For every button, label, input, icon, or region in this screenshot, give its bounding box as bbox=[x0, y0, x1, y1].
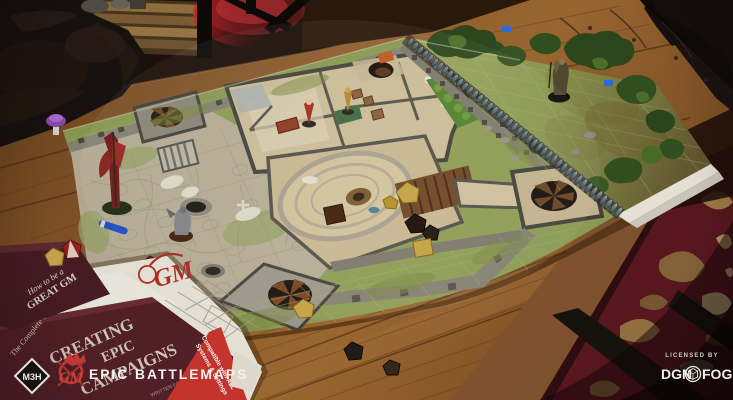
svg-text:LICENSED BY: LICENSED BY bbox=[665, 353, 719, 359]
svg-text:FOG: FOG bbox=[702, 366, 732, 382]
svg-text:EPIC BATTLEMAPS: EPIC BATTLEMAPS bbox=[89, 367, 248, 382]
svg-text:GM: GM bbox=[59, 370, 84, 386]
svg-text:M3H: M3H bbox=[22, 372, 41, 382]
